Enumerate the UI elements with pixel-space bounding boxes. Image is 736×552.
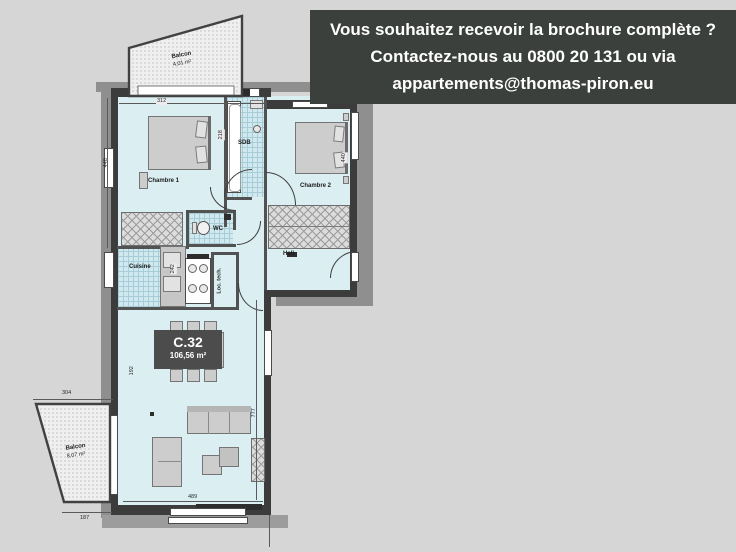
label-wc: WC [213,226,223,232]
balcony-top-door-sill [138,86,234,95]
partition-wc-bottom [186,244,236,247]
sofa-main-back [187,406,251,412]
kitchen-appliance-2 [163,276,181,292]
wardrobe-chambre1 [121,212,183,246]
dim-living-width: 489 [188,495,197,501]
dim-right-upper: 440 [342,152,348,163]
wall-living-right [264,290,271,515]
window-bottom [170,508,246,516]
bed2-headboard [345,122,348,174]
label-cuisine: Cuisine [129,264,151,270]
sofa-side-seam [158,461,182,462]
unit-code: C.32 [154,334,222,351]
window-right-chambre2 [351,112,359,160]
sdb-sink [250,100,263,109]
sofa-side [152,437,182,487]
dim-kitchen: 242 [171,263,177,274]
partition-wc-left [186,210,189,247]
balcony-bottom: Balcon 8,07 m² [28,392,116,516]
banner-line1: Vous souhaitez recevoir la brochure comp… [310,20,736,40]
brochure-banner: Vous souhaitez recevoir la brochure comp… [310,10,736,104]
partition-loctech-left [211,252,214,310]
partition-wc-top [186,210,236,213]
plant-marker [150,412,154,416]
banner-line2: Contactez-nous au 0800 20 131 ou via [310,47,736,67]
dimline-left [107,98,108,248]
cooktop-hood [187,254,209,259]
label-chambre1: Chambre 1 [148,178,179,184]
screenshot-root: C.32 106,56 m² Chambre 1 SDB Chambre 2 W… [0,0,736,552]
coffee-table-2 [219,447,239,467]
dim-left-upper: 448 [104,158,110,167]
tv-unit [251,438,265,482]
partition-loctech-top [211,252,239,255]
wc-corner-sink [224,214,231,220]
nightstand-ch2-top [343,113,349,121]
nightstand-ch2-bottom [343,176,349,184]
bed1-pillow-1 [195,120,208,138]
dimline-top [119,103,265,104]
burner-2 [199,264,208,273]
dim-balcony-bottom-width: 187 [80,516,89,522]
sofa-main-seam-1 [208,412,209,434]
wc-bowl [197,221,210,235]
partition-wc-right [233,210,236,230]
dimline-bottom [123,501,263,502]
banner-line3: appartements@thomas-piron.eu [310,74,736,94]
dimline-living-right [256,300,257,500]
sofa-main-seam-2 [229,412,230,434]
dim-sdb: 218 [219,129,225,140]
label-hall: Hall [283,251,294,257]
partition-kitchen-bottom [117,307,239,310]
bed1-pillow-2 [195,145,208,163]
dimline-corner-drop [269,515,270,547]
label-sdb: SDB [238,140,251,146]
window-left-kitchen [104,252,114,288]
burner-1 [188,264,197,273]
bed1-headboard [208,116,211,170]
unit-area: 106,56 m² [154,351,222,361]
window-bottom-sill [168,517,248,524]
balcony-top: Balcon 4,01 m² [124,10,248,100]
dining-chair-b3 [204,369,217,382]
sdb-washbasin [253,125,261,133]
dining-chair-b2 [187,369,200,382]
window-living-right [264,330,272,376]
dim-living-height: 777 [252,408,258,417]
window-left-chambre1 [104,148,114,188]
wardrobe-chambre2 [268,205,350,249]
wardrobe-divider [268,226,350,227]
dresser-chambre1 [139,172,148,189]
label-chambre2: Chambre 2 [300,183,331,189]
dim-left-lower: 192 [130,366,136,375]
label-loc-tech: Loc. tech. [217,261,223,301]
unit-badge: C.32 106,56 m² [154,330,222,369]
dining-chair-b1 [170,369,183,382]
partition-loctech-right [236,252,239,310]
bed2-pillow-1 [333,126,345,143]
burner-3 [188,284,197,293]
wall-hall-bottom [270,290,357,297]
burner-4 [199,284,208,293]
